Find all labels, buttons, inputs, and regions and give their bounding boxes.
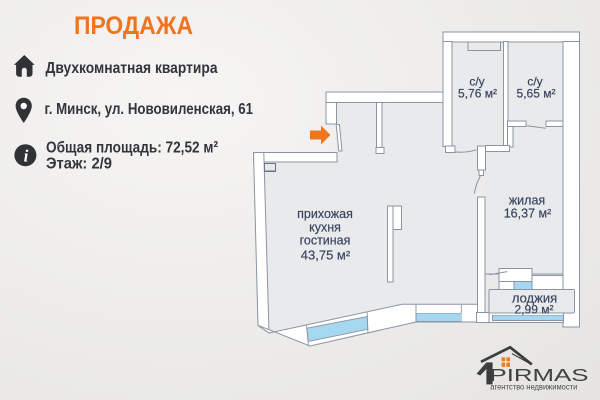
svg-text:агентство недвижимости: агентство недвижимости [490,383,577,392]
svg-text:Двухкомнатная квартира: Двухкомнатная квартира [46,60,218,77]
svg-text:i: i [24,147,29,166]
svg-text:43,75 м²: 43,75 м² [301,248,351,263]
svg-text:прихожая: прихожая [297,207,353,221]
svg-text:Общая площадь: 72,52 м²: Общая площадь: 72,52 м² [46,140,218,157]
svg-text:5,76 м²: 5,76 м² [458,87,497,101]
svg-text:16,37 м²: 16,37 м² [504,206,552,220]
svg-text:гостиная: гостиная [300,234,351,248]
svg-text:кухня: кухня [309,221,341,235]
svg-text:Этаж: 2/9: Этаж: 2/9 [46,156,112,173]
svg-text:5,65 м²: 5,65 м² [517,87,556,101]
svg-text:ПРОДАЖА: ПРОДАЖА [74,13,193,40]
svg-text:г. Минск, ул. Нововиленская, 6: г. Минск, ул. Нововиленская, 61 [45,101,254,118]
svg-text:2,99 м²: 2,99 м² [515,303,554,317]
svg-text:жилая: жилая [509,193,545,207]
